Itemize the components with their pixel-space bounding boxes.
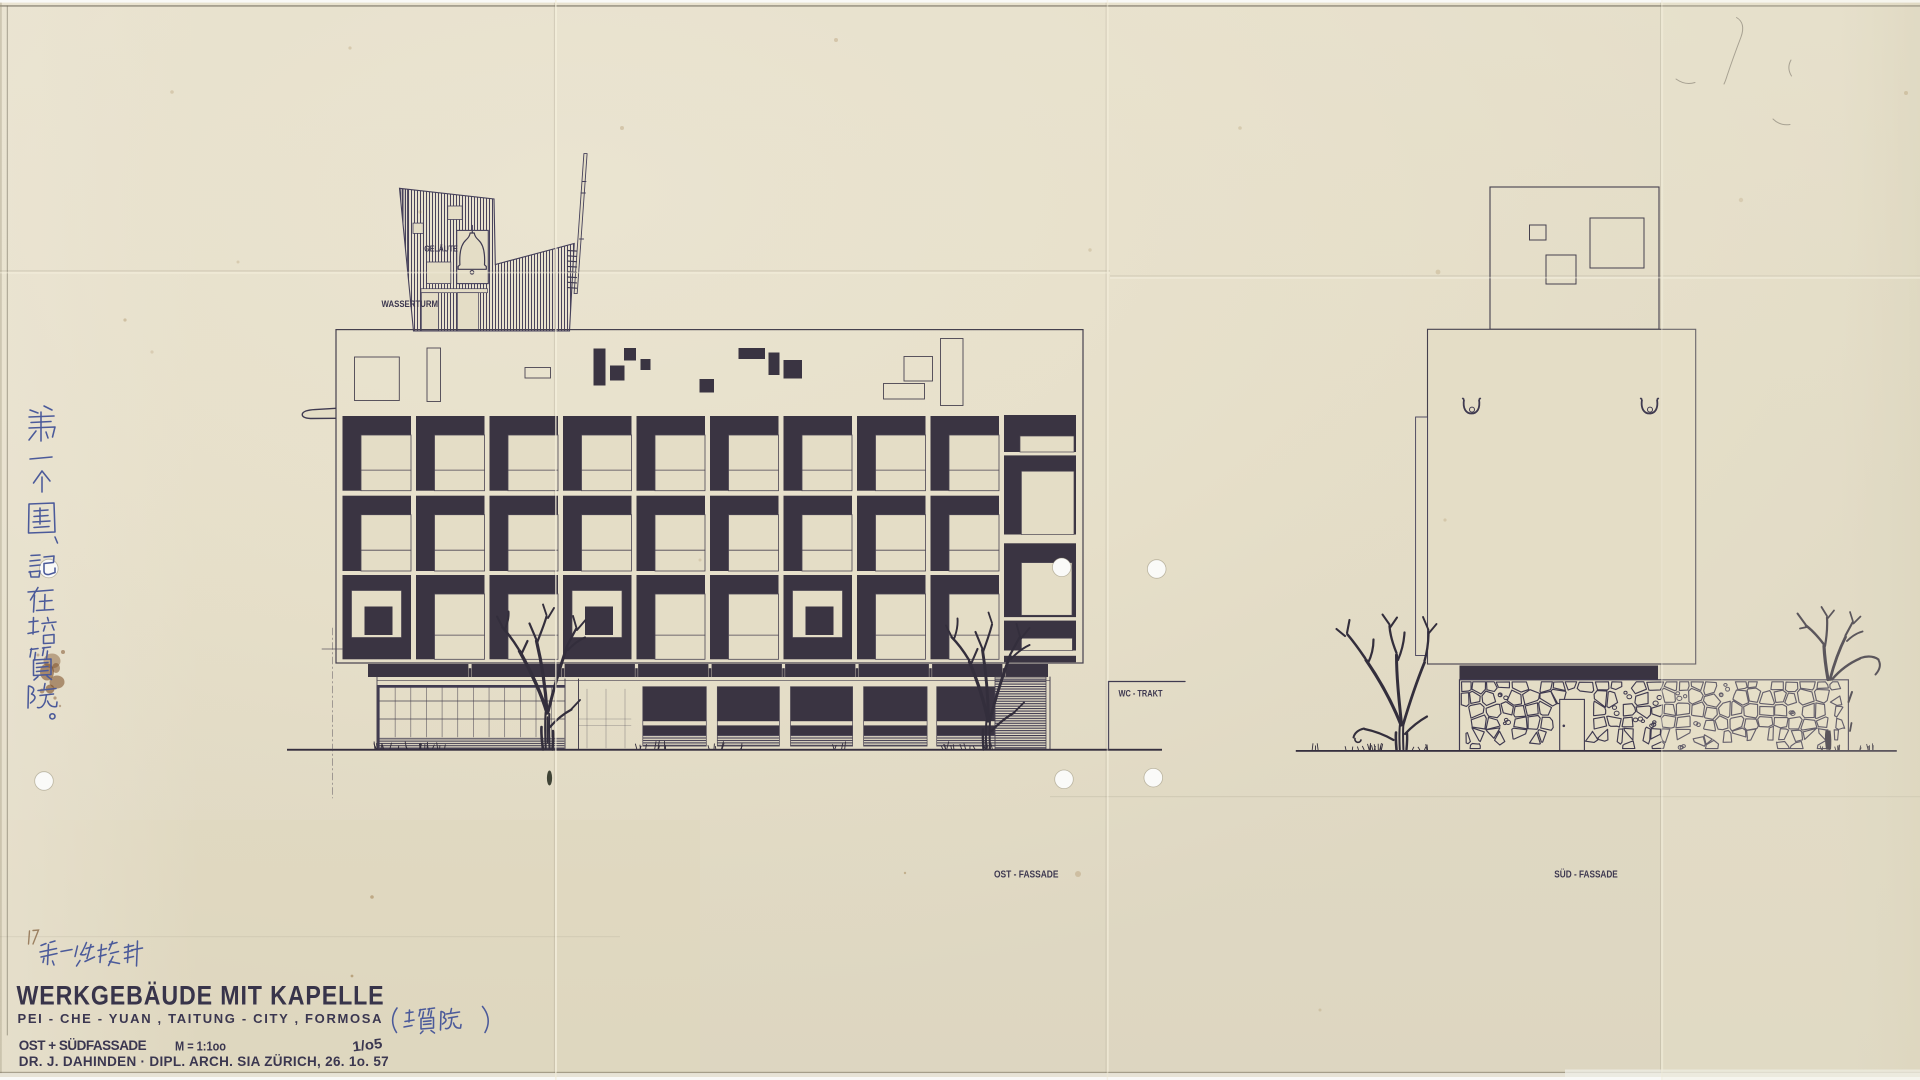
svg-text:OST + SÜDFASSADE: OST + SÜDFASSADE <box>19 1038 147 1053</box>
svg-text:M = 1:1oo: M = 1:1oo <box>175 1038 226 1053</box>
svg-text:WERKGEBÄUDE MIT KAPELLE: WERKGEBÄUDE MIT KAPELLE <box>17 980 385 1010</box>
svg-text:WC - TRAKT: WC - TRAKT <box>1119 688 1163 698</box>
svg-text:OST - FASSADE: OST - FASSADE <box>994 869 1059 880</box>
svg-text:DR. J. DAHINDEN · DIPL. ARCH.: DR. J. DAHINDEN · DIPL. ARCH. SIA ZÜRICH… <box>19 1054 389 1069</box>
svg-text:PEI - CHE - YUAN , TAITUNG - C: PEI - CHE - YUAN , TAITUNG - CITY , FORM… <box>18 1011 383 1026</box>
svg-text:GELÄUTE: GELÄUTE <box>424 243 458 253</box>
svg-text:SÜD - FASSADE: SÜD - FASSADE <box>1554 867 1618 880</box>
svg-text:WASSERTURM: WASSERTURM <box>382 299 439 309</box>
